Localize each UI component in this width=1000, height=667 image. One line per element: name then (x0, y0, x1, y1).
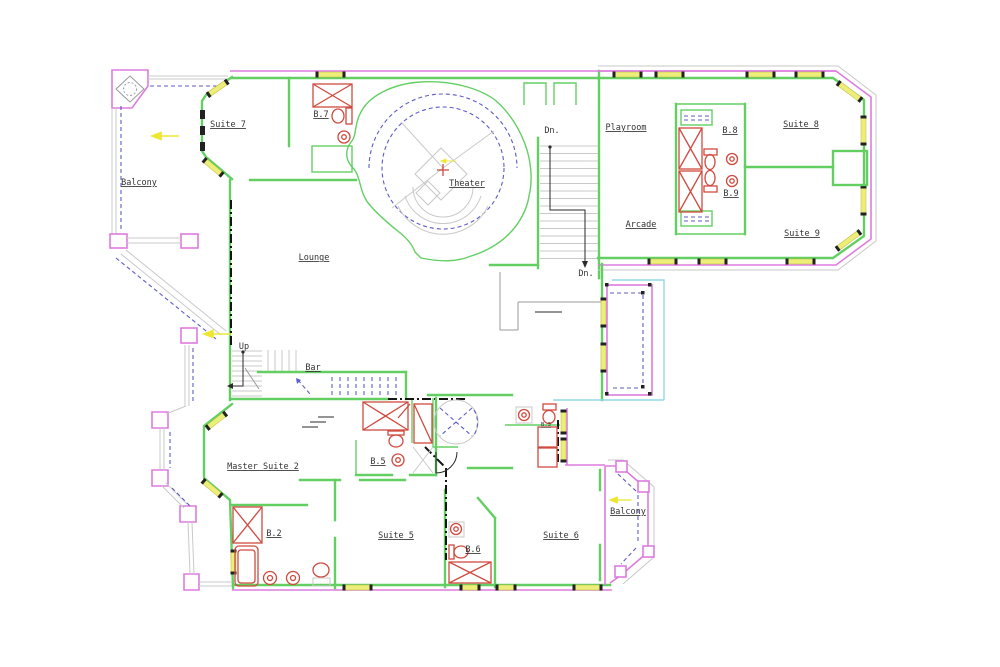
sink-icon (519, 410, 530, 421)
bathroom-b6: B.6 (449, 522, 491, 583)
stair-treads (540, 146, 598, 259)
label-dn-bottom: Dn. (578, 269, 593, 279)
label-suite6: Suite 6 (543, 531, 579, 541)
label-b3: B.3 (541, 422, 551, 428)
stairs-down: Dn. Dn. (490, 71, 602, 330)
label-suite7: Suite 7 (210, 120, 246, 130)
label-b7: B.7 (313, 110, 328, 120)
spiral-feature (434, 400, 478, 444)
label-dn-top: Dn. (544, 126, 559, 136)
label-arcade: Arcade (626, 220, 657, 230)
label-b9: B.9 (723, 189, 738, 199)
closet-shelves (681, 211, 712, 226)
label-bar: Bar (305, 363, 320, 373)
floor-plan-canvas: Balcony Suite 7 B.7 (0, 0, 1000, 667)
label-suite9: Suite 9 (784, 229, 820, 239)
toilet-icon (449, 545, 454, 559)
bathroom-b7: B.7 (289, 78, 352, 172)
toilet-icon (705, 171, 715, 186)
sink-icon (264, 572, 277, 585)
label-playroom: Playroom (606, 123, 647, 133)
label-up: Up (239, 342, 249, 352)
direction-arrow-icon (441, 159, 456, 163)
bathroom-b2: B.2 (233, 507, 330, 586)
direction-arrow-icon (610, 497, 632, 503)
closet-x (413, 447, 433, 473)
bathroom-b8: B.8 (679, 126, 738, 170)
balcony-lower-right: Balcony (600, 460, 654, 585)
label-b6: B.6 (465, 545, 480, 555)
floor-plan-drawing: Balcony Suite 7 B.7 (0, 0, 1000, 667)
direction-arrow-icon (152, 133, 179, 140)
label-b2: B.2 (266, 529, 281, 539)
sink-icon (338, 131, 350, 143)
suite7-room: Suite 7 (200, 77, 356, 180)
label-balcony-upper: Balcony (121, 178, 157, 188)
sink-icon (451, 524, 462, 535)
bathroom-b3: B.3 (516, 404, 557, 467)
toilet-icon (346, 108, 352, 124)
closet-steps (302, 417, 334, 427)
bathroom-b9: B.9 (679, 171, 739, 213)
label-balcony-lower: Balcony (610, 507, 646, 517)
sink-icon (727, 176, 738, 187)
sink-icon (392, 454, 404, 466)
stairs-up-and-bar: Up Bar (227, 342, 465, 399)
label-b8: B.8 (722, 126, 737, 136)
terrace-deck (553, 264, 664, 400)
label-b5: B.5 (370, 457, 385, 467)
label-theater: Theater (449, 179, 485, 189)
theater-room: Theater (347, 82, 531, 261)
label-master-suite2: Master Suite 2 (227, 462, 299, 472)
right-wing: Playroom Arcade Suite 8 Suite 9 (598, 66, 876, 270)
bathroom-b5: B.5 (363, 402, 457, 473)
toilet-icon (543, 404, 556, 410)
sink-icon (287, 572, 300, 585)
label-suite5: Suite 5 (378, 531, 414, 541)
label-lounge: Lounge (299, 253, 330, 263)
label-suite8: Suite 8 (783, 120, 819, 130)
toilet-icon (313, 563, 329, 577)
closet-shelves (681, 110, 712, 125)
sink-icon (727, 154, 738, 165)
bar-stools (298, 377, 396, 397)
